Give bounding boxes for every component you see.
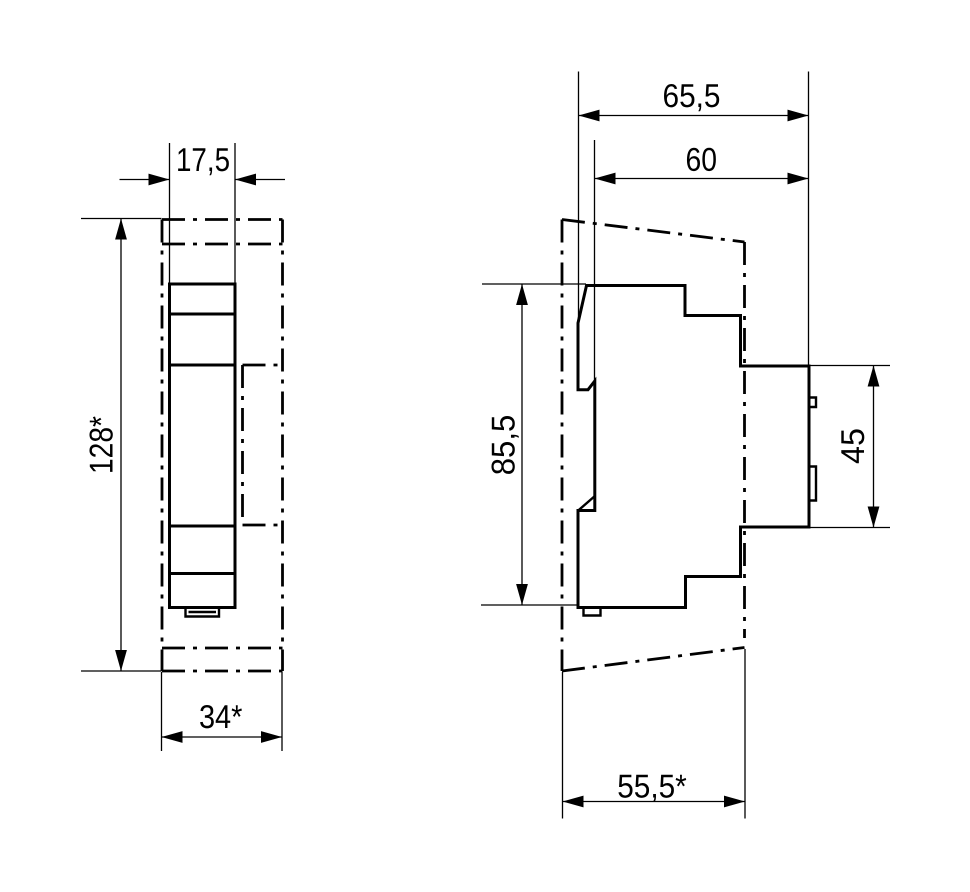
svg-text:34*: 34* bbox=[199, 698, 243, 735]
svg-text:45: 45 bbox=[834, 428, 871, 464]
svg-text:60: 60 bbox=[686, 141, 718, 178]
svg-text:128*: 128* bbox=[83, 416, 120, 474]
svg-text:85,5: 85,5 bbox=[485, 415, 522, 476]
svg-text:17,5: 17,5 bbox=[176, 141, 230, 178]
svg-text:65,5: 65,5 bbox=[662, 77, 720, 114]
svg-text:55,5*: 55,5* bbox=[617, 767, 687, 804]
